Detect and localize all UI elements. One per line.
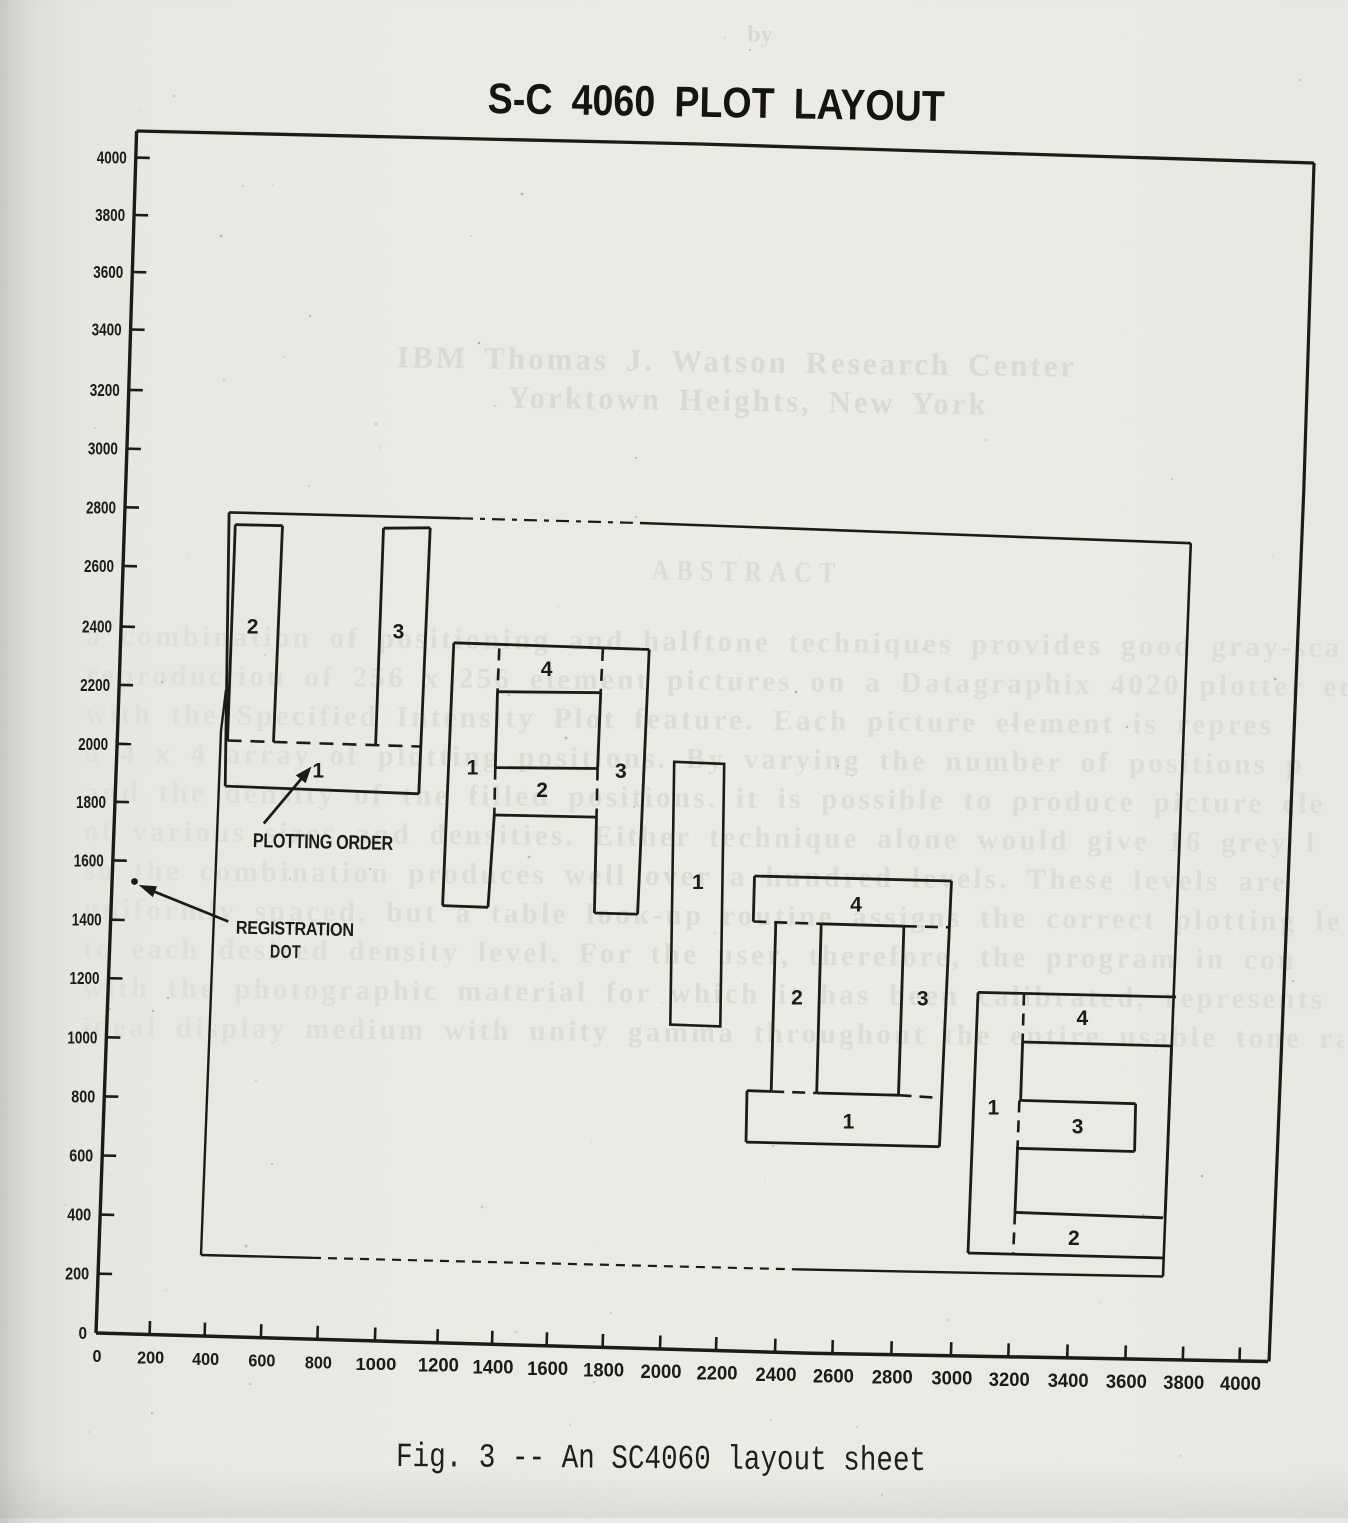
svg-text:to each desired density level.: to each desired density level. For the u… <box>83 933 1298 977</box>
svg-text:800: 800 <box>305 1352 332 1372</box>
svg-text:2200: 2200 <box>697 1364 738 1385</box>
svg-text:2: 2 <box>247 615 259 638</box>
svg-text:2: 2 <box>791 987 803 1010</box>
svg-text:400: 400 <box>67 1205 91 1225</box>
svg-text:IBM Thomas J. Watson Research: IBM Thomas J. Watson Research Center <box>397 339 1077 383</box>
svg-text:with the photographic material: with the photographic material for which… <box>82 972 1325 1016</box>
svg-text:1: 1 <box>467 756 479 779</box>
svg-text:3: 3 <box>1072 1116 1084 1139</box>
svg-text:3: 3 <box>615 760 627 783</box>
svg-text:3200: 3200 <box>989 1370 1030 1391</box>
svg-text:2600: 2600 <box>813 1367 854 1388</box>
svg-text:so the combination produces we: so the combination produces well over a … <box>83 855 1288 899</box>
svg-text:3600: 3600 <box>1106 1372 1147 1393</box>
svg-text:2400: 2400 <box>82 617 112 637</box>
svg-text:a 4 x 4 array of plotting posi: a 4 x 4 array of plotting positions. By … <box>85 737 1306 781</box>
svg-text:3000: 3000 <box>88 439 118 459</box>
svg-text:200: 200 <box>65 1264 89 1284</box>
svg-text:2: 2 <box>1068 1227 1080 1250</box>
svg-text:4000: 4000 <box>1220 1374 1261 1395</box>
svg-text:1: 1 <box>312 759 324 782</box>
svg-text:1800: 1800 <box>583 1360 624 1381</box>
svg-text:DOT: DOT <box>270 941 301 963</box>
svg-text:3600: 3600 <box>93 262 123 282</box>
svg-text:2: 2 <box>536 779 548 802</box>
svg-text:3400: 3400 <box>1048 1371 1089 1392</box>
svg-text:800: 800 <box>71 1086 95 1106</box>
svg-text:ABSTRACT: ABSTRACT <box>651 555 842 590</box>
svg-text:600: 600 <box>248 1351 275 1371</box>
svg-text:1: 1 <box>692 871 704 894</box>
svg-text:3400: 3400 <box>92 320 122 340</box>
svg-text:1800: 1800 <box>76 792 106 812</box>
svg-text:1: 1 <box>843 1111 855 1134</box>
svg-text:4: 4 <box>541 658 553 681</box>
svg-text:200: 200 <box>137 1348 164 1368</box>
svg-text:1: 1 <box>987 1097 999 1120</box>
svg-text:2800: 2800 <box>872 1368 913 1389</box>
svg-text:Fig. 3 -- An SC4060 layout she: Fig. 3 -- An SC4060 layout sheet <box>396 1439 926 1481</box>
svg-text:with the Specified Intensity P: with the Specified Intensity Plot featur… <box>85 698 1274 741</box>
svg-text:2000: 2000 <box>641 1362 682 1383</box>
svg-text:1200: 1200 <box>70 968 100 988</box>
svg-text:4: 4 <box>1077 1007 1089 1030</box>
svg-text:0: 0 <box>79 1323 88 1343</box>
svg-text:PLOTTING ORDER: PLOTTING ORDER <box>253 830 394 855</box>
svg-text:3: 3 <box>917 988 929 1011</box>
svg-text:3800: 3800 <box>95 205 125 225</box>
svg-text:3000: 3000 <box>931 1369 972 1390</box>
svg-text:REGISTRATION: REGISTRATION <box>236 917 354 940</box>
svg-text:600: 600 <box>69 1146 93 1166</box>
svg-text:Yorktown Heights, New York: Yorktown Heights, New York <box>507 380 988 422</box>
svg-text:2400: 2400 <box>756 1365 797 1386</box>
svg-text:2800: 2800 <box>86 497 116 517</box>
svg-text:2600: 2600 <box>84 556 114 576</box>
svg-text:400: 400 <box>192 1349 219 1369</box>
svg-text:S-C 4060 PLOT LAYOUT: S-C 4060 PLOT LAYOUT <box>487 75 945 131</box>
svg-text:3: 3 <box>393 620 405 643</box>
svg-text:3800: 3800 <box>1163 1373 1204 1394</box>
svg-text:4: 4 <box>850 894 862 917</box>
svg-text:4000: 4000 <box>97 148 127 168</box>
svg-text:a combination of positioning a: a combination of positioning and halfton… <box>86 620 1343 664</box>
svg-text:2000: 2000 <box>78 734 108 754</box>
svg-text:1400: 1400 <box>72 910 102 930</box>
svg-text:2200: 2200 <box>80 675 110 695</box>
svg-text:ideal display medium with unit: ideal display medium with unity gamma th… <box>82 1011 1348 1055</box>
svg-text:1600: 1600 <box>527 1359 568 1380</box>
svg-text:3200: 3200 <box>90 380 120 400</box>
svg-text:0: 0 <box>93 1346 102 1366</box>
svg-text:by: by <box>747 22 772 48</box>
svg-text:1000: 1000 <box>355 1354 396 1374</box>
svg-text:1400: 1400 <box>473 1357 514 1378</box>
svg-text:1000: 1000 <box>67 1027 97 1047</box>
svg-text:1200: 1200 <box>418 1356 459 1377</box>
svg-text:1600: 1600 <box>74 850 104 870</box>
